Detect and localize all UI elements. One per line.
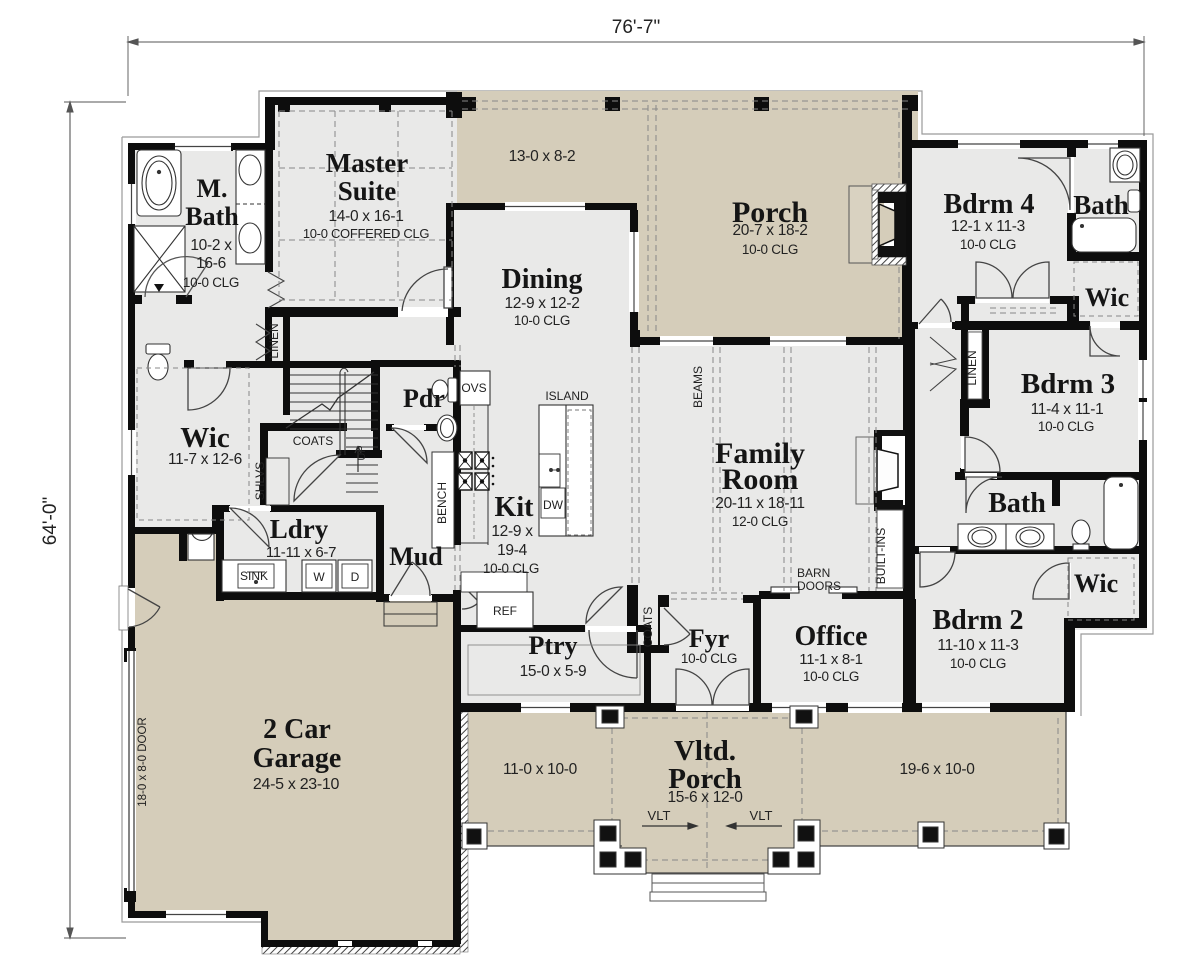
svg-text:DW: DW (543, 498, 564, 512)
svg-text:BENCH: BENCH (435, 482, 449, 524)
svg-text:14-0 x 16-1: 14-0 x 16-1 (328, 208, 403, 225)
svg-text:Office: Office (794, 621, 867, 652)
svg-text:Garage: Garage (253, 743, 342, 774)
svg-text:11-10 x 11-3: 11-10 x 11-3 (937, 637, 1018, 654)
svg-text:Kit: Kit (495, 492, 535, 523)
svg-text:2 Car: 2 Car (263, 714, 331, 745)
svg-text:10-0 CLG: 10-0 CLG (183, 275, 239, 290)
svg-text:18-0 x 8-0 DOOR: 18-0 x 8-0 DOOR (137, 717, 149, 806)
svg-text:Ptry: Ptry (528, 631, 577, 660)
svg-text:64'-0": 64'-0" (40, 497, 61, 545)
svg-text:20-11 x 18-11: 20-11 x 18-11 (715, 495, 804, 512)
svg-text:11-4 x 11-1: 11-4 x 11-1 (1031, 401, 1104, 418)
svg-text:Wic: Wic (1074, 569, 1118, 598)
svg-text:12-9 x 12-2: 12-9 x 12-2 (504, 295, 579, 312)
svg-text:OVS: OVS (461, 381, 486, 395)
svg-text:Bdrm 2: Bdrm 2 (933, 605, 1024, 636)
svg-text:COATS: COATS (293, 434, 333, 448)
svg-text:Bath: Bath (988, 488, 1046, 519)
svg-text:10-0 CLG: 10-0 CLG (681, 651, 737, 666)
svg-text:BEAMS: BEAMS (691, 366, 705, 408)
svg-text:10-0 CLG: 10-0 CLG (950, 656, 1006, 671)
svg-text:12-9 x: 12-9 x (491, 523, 533, 540)
svg-text:DOORS: DOORS (797, 579, 841, 593)
svg-text:W: W (313, 570, 325, 584)
svg-text:10-0 CLG: 10-0 CLG (514, 313, 570, 328)
svg-text:11-0 x 10-0: 11-0 x 10-0 (503, 761, 578, 778)
svg-text:10-0 CLG: 10-0 CLG (960, 237, 1016, 252)
svg-text:Pdr: Pdr (403, 384, 445, 413)
svg-text:10-0 CLG: 10-0 CLG (1038, 419, 1094, 434)
svg-text:Bath: Bath (185, 202, 239, 231)
svg-text:76'-7": 76'-7" (612, 17, 660, 38)
svg-text:LINEN: LINEN (965, 350, 979, 385)
svg-text:20-7 x 18-2: 20-7 x 18-2 (732, 222, 807, 239)
svg-text:11-7 x 12-6: 11-7 x 12-6 (168, 451, 242, 468)
svg-text:Ldry: Ldry (270, 514, 329, 544)
svg-text:15-0 x 5-9: 15-0 x 5-9 (520, 663, 587, 680)
svg-text:10-2 x: 10-2 x (190, 237, 232, 254)
svg-text:Wic: Wic (180, 422, 230, 454)
svg-text:Suite: Suite (338, 176, 397, 206)
svg-text:12-1 x 11-3: 12-1 x 11-3 (951, 218, 1025, 235)
svg-text:10-0 CLG: 10-0 CLG (742, 242, 798, 257)
svg-text:10-0 CLG: 10-0 CLG (483, 561, 539, 576)
svg-text:Master: Master (326, 148, 408, 178)
svg-text:Bath: Bath (1073, 190, 1129, 220)
svg-text:Room: Room (722, 463, 799, 496)
svg-text:REF: REF (493, 604, 517, 618)
svg-text:12-0 CLG: 12-0 CLG (732, 514, 788, 529)
svg-text:15-6 x 12-0: 15-6 x 12-0 (667, 789, 743, 806)
svg-text:D: D (351, 570, 360, 584)
svg-text:SINK: SINK (240, 569, 268, 583)
svg-text:24-5 x 23-10: 24-5 x 23-10 (253, 776, 340, 793)
svg-text:LINEN: LINEN (267, 323, 281, 358)
svg-text:Bdrm 3: Bdrm 3 (1021, 368, 1115, 400)
svg-text:Bdrm 4: Bdrm 4 (944, 189, 1035, 220)
svg-text:BARN: BARN (797, 566, 830, 580)
svg-text:SHLVS: SHLVS (253, 462, 267, 500)
svg-text:Fyr: Fyr (689, 624, 729, 653)
svg-text:Mud: Mud (389, 542, 443, 571)
svg-text:Dining: Dining (502, 264, 583, 295)
svg-text:Wic: Wic (1085, 283, 1129, 312)
svg-text:VLT: VLT (750, 808, 773, 823)
svg-text:M.: M. (196, 174, 227, 203)
svg-text:19-4: 19-4 (497, 542, 528, 559)
svg-text:10-0 CLG: 10-0 CLG (803, 669, 859, 684)
svg-text:11-1 x 8-1: 11-1 x 8-1 (799, 651, 862, 668)
svg-text:BUILT-INS: BUILT-INS (874, 528, 888, 584)
svg-text:UP: UP (356, 445, 368, 460)
svg-text:10-0 COFFERED CLG: 10-0 COFFERED CLG (303, 226, 430, 241)
svg-text:13-0 x 8-2: 13-0 x 8-2 (509, 148, 576, 165)
svg-text:19-6 x 10-0: 19-6 x 10-0 (899, 761, 975, 778)
svg-text:11-11 x 6-7: 11-11 x 6-7 (266, 544, 336, 561)
svg-text:ISLAND: ISLAND (545, 389, 589, 403)
svg-text:VLT: VLT (648, 808, 671, 823)
svg-text:COATS: COATS (641, 607, 655, 647)
svg-text:16-6: 16-6 (196, 255, 226, 272)
